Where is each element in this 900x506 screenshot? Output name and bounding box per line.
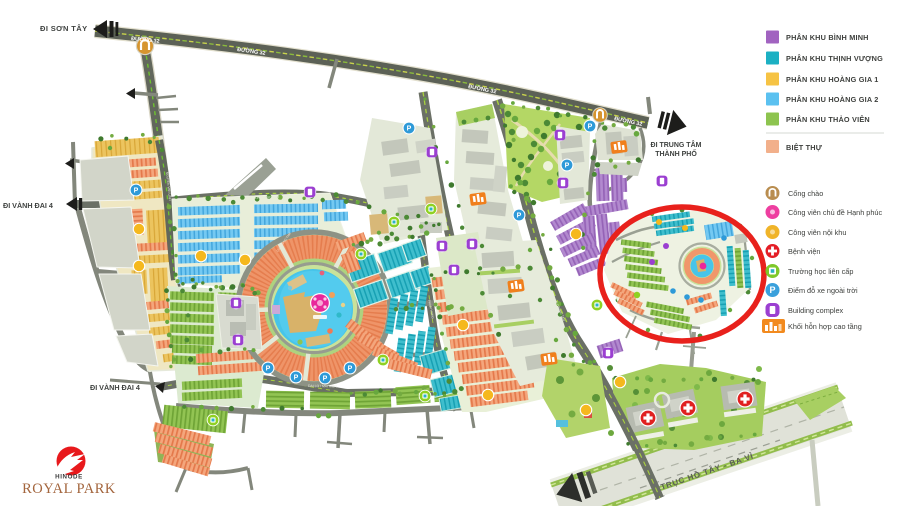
- svg-text:PHÂN KHU BÌNH MINH: PHÂN KHU BÌNH MINH: [786, 33, 869, 42]
- svg-text:ROYAL PARK: ROYAL PARK: [22, 481, 116, 497]
- svg-text:PHÂN KHU HOÀNG GIA 2: PHÂN KHU HOÀNG GIA 2: [786, 95, 879, 104]
- svg-text:P: P: [517, 213, 522, 220]
- svg-text:PHÂN KHU THỊNH VƯỢNG: PHÂN KHU THỊNH VƯỢNG: [786, 54, 883, 63]
- svg-text:P: P: [588, 124, 593, 131]
- svg-text:Công viên nội khu: Công viên nội khu: [788, 228, 846, 237]
- svg-text:ĐI SƠN TÂY: ĐI SƠN TÂY: [40, 24, 87, 33]
- svg-text:PHÂN KHU HOÀNG GIA 1: PHÂN KHU HOÀNG GIA 1: [786, 75, 879, 84]
- svg-text:P: P: [407, 126, 412, 133]
- svg-text:Điểm đỗ xe ngoài trời: Điểm đỗ xe ngoài trời: [788, 286, 858, 295]
- svg-text:P: P: [266, 366, 271, 373]
- svg-text:P: P: [134, 188, 139, 195]
- svg-text:Khối hỗn hợp cao tầng: Khối hỗn hợp cao tầng: [788, 322, 862, 331]
- svg-text:HINODE: HINODE: [55, 474, 83, 481]
- svg-text:P: P: [323, 376, 328, 383]
- svg-text:P: P: [565, 163, 570, 170]
- svg-text:P: P: [769, 285, 775, 295]
- svg-text:Building complex: Building complex: [788, 306, 844, 315]
- svg-text:Trường học liên cấp: Trường học liên cấp: [788, 267, 853, 276]
- svg-text:Công viên chủ đề Hạnh phúc: Công viên chủ đề Hạnh phúc: [788, 208, 882, 217]
- svg-text:DAI LO / MAI MON: DAI LO / MAI MON: [308, 384, 337, 389]
- svg-text:P: P: [348, 366, 353, 373]
- svg-text:PHÂN KHU THẢO VIÊN: PHÂN KHU THẢO VIÊN: [786, 115, 870, 124]
- svg-text:P: P: [294, 375, 299, 382]
- svg-text:ĐI VÀNH ĐAI 4: ĐI VÀNH ĐAI 4: [3, 201, 53, 210]
- svg-text:ĐI VÀNH ĐAI 4: ĐI VÀNH ĐAI 4: [90, 383, 140, 392]
- svg-text:BIỆT THỰ: BIỆT THỰ: [786, 143, 823, 152]
- svg-text:ĐI TRUNG TÂM: ĐI TRUNG TÂM: [651, 140, 702, 149]
- svg-text:Cổng chào: Cổng chào: [788, 189, 823, 198]
- svg-text:Bệnh viện: Bệnh viện: [788, 247, 820, 256]
